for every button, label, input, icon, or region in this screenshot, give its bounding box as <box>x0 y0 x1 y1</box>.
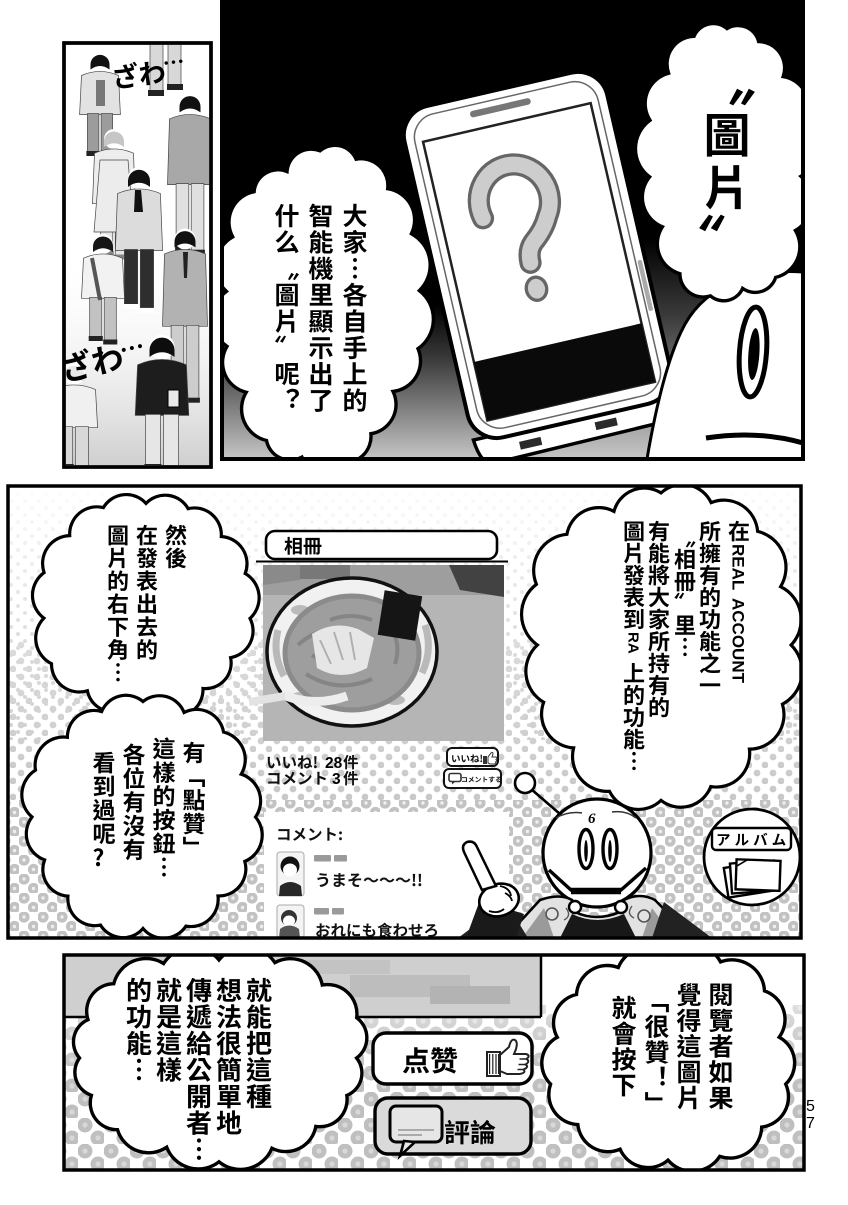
svg-text:28: 28 <box>325 755 343 772</box>
svg-text:RA: RA <box>624 632 641 654</box>
svg-text:3: 3 <box>332 771 341 788</box>
svg-text:6: 6 <box>588 811 596 827</box>
svg-text:7: 7 <box>806 1115 815 1132</box>
svg-text:REAL: REAL <box>729 544 748 590</box>
svg-text:ACCOUNT: ACCOUNT <box>729 598 748 684</box>
svg-text:5: 5 <box>806 1098 815 1115</box>
